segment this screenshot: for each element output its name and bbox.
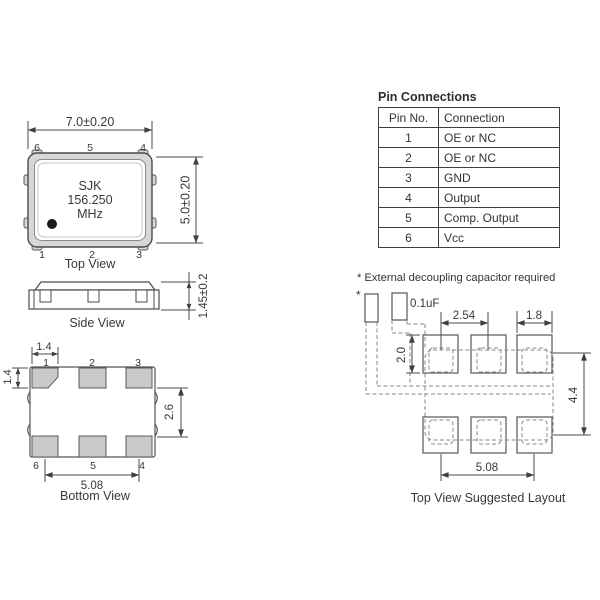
pin-connection: Output	[439, 188, 560, 208]
header-pin-no: Pin No.	[379, 108, 439, 128]
pin-connection: Comp. Output	[439, 208, 560, 228]
top-view-width-dim: 7.0±0.20	[66, 115, 115, 129]
capacitor-asterisk: *	[356, 288, 361, 302]
pad-height-dimension-lines	[12, 368, 28, 388]
top-view-label: Top View	[65, 257, 116, 271]
table-row: 1 OE or NC	[379, 128, 560, 148]
technical-drawing: SJK 156.250 MHz 6 5 4 1 2 3 7.0±0.20 5.0…	[0, 0, 600, 600]
suggested-layout-label: Top View Suggested Layout	[411, 491, 566, 505]
capacitor-pad-left	[365, 294, 378, 322]
pin-connection: OE or NC	[439, 148, 560, 168]
pin-label-5: 5	[87, 142, 93, 154]
pin-number: 2	[379, 148, 439, 168]
layout-row-span-dim: 4.4	[568, 386, 580, 403]
pin-connection: GND	[439, 168, 560, 188]
table-header-row: Pin No. Connection	[379, 108, 560, 128]
suggested-layout-drawing: * 0.1uF	[356, 288, 591, 505]
pin-table-title: Pin Connections	[378, 90, 477, 104]
pad-3	[126, 368, 152, 388]
pin-number: 5	[379, 208, 439, 228]
bottom-pin-label-4: 4	[139, 460, 145, 472]
header-connection: Connection	[439, 108, 560, 128]
pin-label-1: 1	[39, 249, 45, 261]
pin-number: 6	[379, 228, 439, 248]
side-view-label: Side View	[69, 316, 125, 330]
table-row: 4 Output	[379, 188, 560, 208]
pin-label-3: 3	[136, 249, 142, 261]
pad-6	[32, 436, 58, 457]
bottom-view-drawing: 1 2 3 6 5 4 1.4 1.4 2.6	[2, 341, 188, 503]
bottom-pin-label-6: 6	[33, 460, 39, 472]
table-row: 2 OE or NC	[379, 148, 560, 168]
pin1-marker-dot	[47, 219, 57, 229]
pin-number: 3	[379, 168, 439, 188]
side-view-drawing: 1.45±0.2 Side View	[29, 272, 210, 330]
pad-5	[79, 436, 106, 457]
layout-pitch-dim: 2.54	[453, 310, 476, 322]
pin-connection: OE or NC	[439, 128, 560, 148]
layout-pad-height-dim: 2.0	[396, 347, 408, 363]
layout-col-span-dim: 5.08	[476, 462, 498, 474]
table-row: 6 Vcc	[379, 228, 560, 248]
bottom-pin-label-1: 1	[43, 357, 49, 369]
pad-2	[79, 368, 106, 388]
bottom-view-label: Bottom View	[60, 489, 131, 503]
bottom-row-gap-dim: 2.6	[164, 404, 176, 420]
datasheet-page: SJK 156.250 MHz 6 5 4 1 2 3 7.0±0.20 5.0…	[0, 0, 600, 600]
top-view-drawing: SJK 156.250 MHz 6 5 4 1 2 3 7.0±0.20 5.0…	[24, 115, 203, 271]
pin-number: 4	[379, 188, 439, 208]
decoupling-capacitor-note: * External decoupling capacitor required	[357, 272, 555, 284]
bottom-pin-label-3: 3	[135, 357, 141, 369]
table-row: 5 Comp. Output	[379, 208, 560, 228]
bottom-pin-label-5: 5	[90, 460, 96, 472]
layout-pads	[423, 335, 552, 453]
pin-connection: Vcc	[439, 228, 560, 248]
thickness-dimension-lines	[161, 272, 196, 320]
layout-pad-height-lines	[406, 335, 420, 373]
pin-connections-table: Pin No. Connection 1 OE or NC 2 OE or NC…	[378, 107, 560, 248]
chip-brand: SJK	[79, 179, 103, 193]
side-lid	[35, 282, 155, 290]
pin-number: 1	[379, 128, 439, 148]
bottom-pad-width-dim: 1.4	[36, 341, 51, 353]
bottom-pad-height-dim: 1.4	[2, 369, 14, 384]
pin-label-6: 6	[34, 142, 40, 154]
pad-4	[126, 436, 152, 457]
side-view-height-dim: 1.45±0.2	[198, 274, 210, 319]
capacitor-pad-right	[392, 293, 407, 320]
chip-frequency-unit: MHz	[77, 207, 103, 221]
table-row: 3 GND	[379, 168, 560, 188]
top-view-height-dim: 5.0±0.20	[178, 176, 192, 225]
layout-pad-width-dim: 1.8	[526, 310, 542, 322]
chip-frequency: 156.250	[67, 193, 112, 207]
bottom-pin-label-2: 2	[89, 357, 95, 369]
pin-label-4: 4	[140, 142, 146, 154]
capacitor-value: 0.1uF	[410, 298, 439, 310]
